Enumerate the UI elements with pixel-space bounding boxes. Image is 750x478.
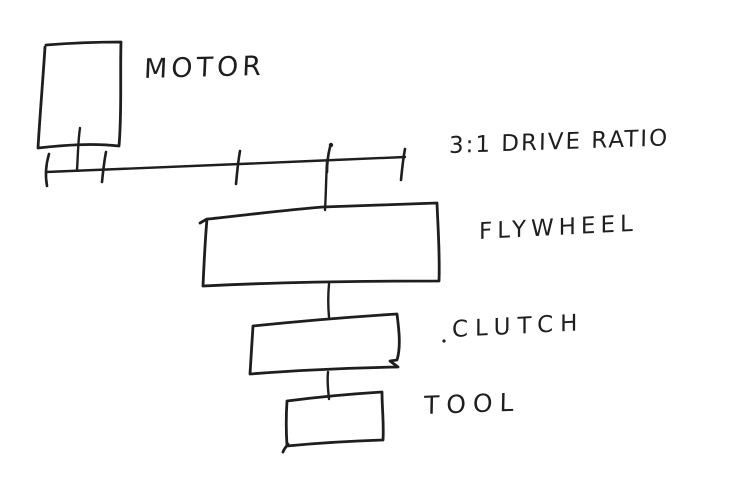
clutch-box [250, 314, 399, 374]
shaft-tick-1 [46, 154, 49, 186]
tool-box [283, 392, 383, 452]
drive-shaft-line [46, 157, 405, 172]
shaft-tick-3 [236, 151, 240, 184]
flywheel-clutch-connector [328, 284, 329, 317]
tool-label: TOOL [424, 388, 521, 420]
shaft-tick-2 [102, 152, 106, 182]
diagram-drawing [0, 0, 750, 478]
motor-shaft-connector [77, 128, 80, 170]
flywheel-box [200, 203, 439, 286]
stray-ink-dot [442, 339, 445, 342]
sketch-canvas: MOTOR 3:1 DRIVE RATIO FLYWHEEL CLUTCH TO… [0, 0, 750, 478]
shaft-tick-5 [401, 149, 405, 180]
motor-label: MOTOR [143, 51, 265, 85]
shaft-tick-4-hook [329, 143, 333, 147]
shaft-flywheel-connector [325, 162, 327, 210]
